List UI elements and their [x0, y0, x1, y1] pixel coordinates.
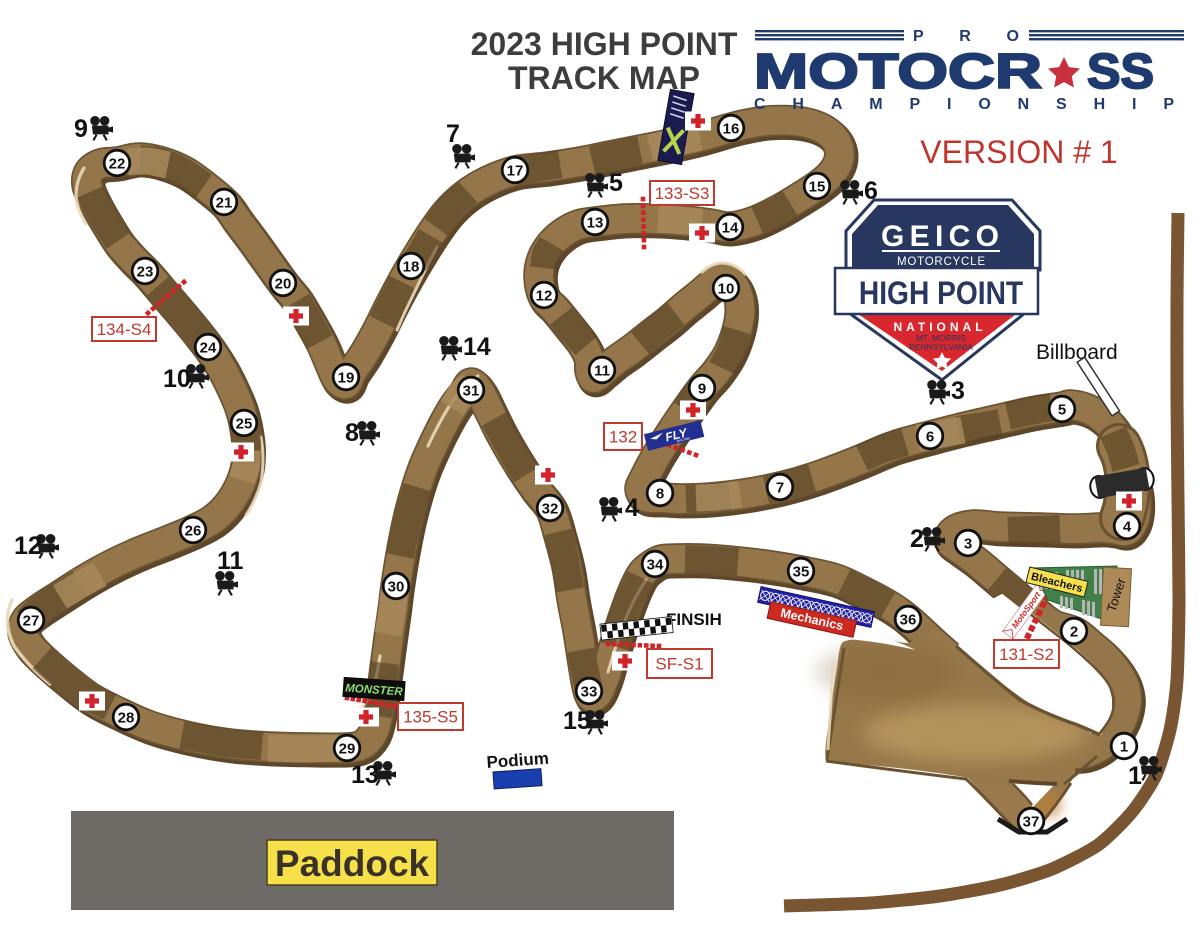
- svg-text:17: 17: [507, 163, 524, 180]
- svg-text:23: 23: [137, 264, 154, 281]
- svg-text:14: 14: [463, 333, 491, 361]
- svg-text:11: 11: [217, 547, 244, 575]
- svg-text:24: 24: [200, 340, 217, 357]
- svg-text:4: 4: [1123, 519, 1132, 536]
- svg-text:8: 8: [656, 486, 664, 503]
- svg-text:12: 12: [14, 532, 42, 560]
- svg-text:5: 5: [1058, 402, 1066, 419]
- svg-text:3: 3: [964, 536, 972, 553]
- svg-text:15: 15: [563, 707, 591, 735]
- svg-text:135-S5: 135-S5: [403, 708, 458, 727]
- svg-text:MOTORCYCLE: MOTORCYCLE: [897, 256, 985, 268]
- svg-text:2023 HIGH POINT: 2023 HIGH POINT: [471, 26, 738, 62]
- svg-text:VERSION # 1: VERSION # 1: [920, 134, 1117, 170]
- svg-text:36: 36: [900, 612, 917, 629]
- svg-text:11: 11: [594, 363, 610, 380]
- svg-text:1: 1: [1128, 762, 1142, 790]
- svg-text:15: 15: [809, 179, 826, 196]
- svg-text:31: 31: [463, 383, 480, 400]
- svg-text:PENNSYLVANIA: PENNSYLVANIA: [909, 342, 973, 352]
- svg-text:MOTOCR: MOTOCR: [754, 45, 1042, 99]
- svg-text:Paddock: Paddock: [275, 843, 430, 884]
- svg-text:16: 16: [723, 121, 740, 138]
- svg-text:30: 30: [388, 579, 405, 596]
- svg-text:131-S2: 131-S2: [999, 645, 1054, 664]
- svg-text:7: 7: [446, 120, 460, 148]
- svg-text:21: 21: [216, 195, 233, 212]
- svg-text:10: 10: [718, 281, 735, 298]
- svg-text:9: 9: [74, 115, 88, 143]
- svg-text:SS: SS: [1087, 45, 1154, 99]
- svg-text:4: 4: [625, 494, 639, 522]
- svg-text:9: 9: [698, 381, 706, 398]
- svg-text:29: 29: [339, 741, 356, 758]
- svg-text:35: 35: [793, 564, 810, 581]
- svg-text:22: 22: [109, 156, 126, 173]
- svg-text:134-S4: 134-S4: [97, 320, 152, 339]
- svg-text:27: 27: [23, 613, 40, 630]
- svg-text:2: 2: [1070, 624, 1078, 641]
- svg-text:37: 37: [1023, 814, 1040, 831]
- svg-text:2: 2: [910, 525, 924, 553]
- svg-text:33: 33: [581, 684, 598, 701]
- svg-text:12: 12: [536, 288, 553, 305]
- svg-text:Billboard: Billboard: [1036, 341, 1118, 364]
- svg-text:1: 1: [1120, 739, 1128, 756]
- svg-text:19: 19: [338, 370, 355, 387]
- svg-text:SF-S1: SF-S1: [655, 655, 703, 674]
- svg-text:NATIONAL: NATIONAL: [893, 320, 986, 334]
- svg-text:6: 6: [926, 429, 934, 446]
- svg-text:7: 7: [776, 480, 784, 497]
- svg-text:HIGH POINT: HIGH POINT: [859, 276, 1024, 311]
- svg-text:28: 28: [118, 710, 135, 727]
- svg-text:18: 18: [403, 259, 420, 276]
- svg-text:34: 34: [647, 557, 664, 574]
- svg-text:6: 6: [864, 177, 878, 205]
- svg-text:20: 20: [275, 276, 292, 293]
- svg-text:5: 5: [609, 169, 623, 197]
- svg-text:10: 10: [163, 365, 191, 393]
- svg-text:8: 8: [345, 419, 359, 447]
- svg-text:13: 13: [587, 215, 604, 232]
- svg-text:14: 14: [722, 220, 739, 237]
- svg-text:13: 13: [351, 761, 379, 789]
- svg-text:GEICO: GEICO: [881, 220, 1001, 253]
- svg-text:25: 25: [236, 416, 253, 433]
- svg-text:FINSIH: FINSIH: [666, 610, 722, 629]
- svg-text:133-S3: 133-S3: [655, 184, 710, 203]
- svg-text:32: 32: [542, 501, 559, 518]
- svg-text:3: 3: [951, 377, 965, 405]
- svg-text:132: 132: [609, 428, 637, 447]
- svg-text:26: 26: [185, 523, 202, 540]
